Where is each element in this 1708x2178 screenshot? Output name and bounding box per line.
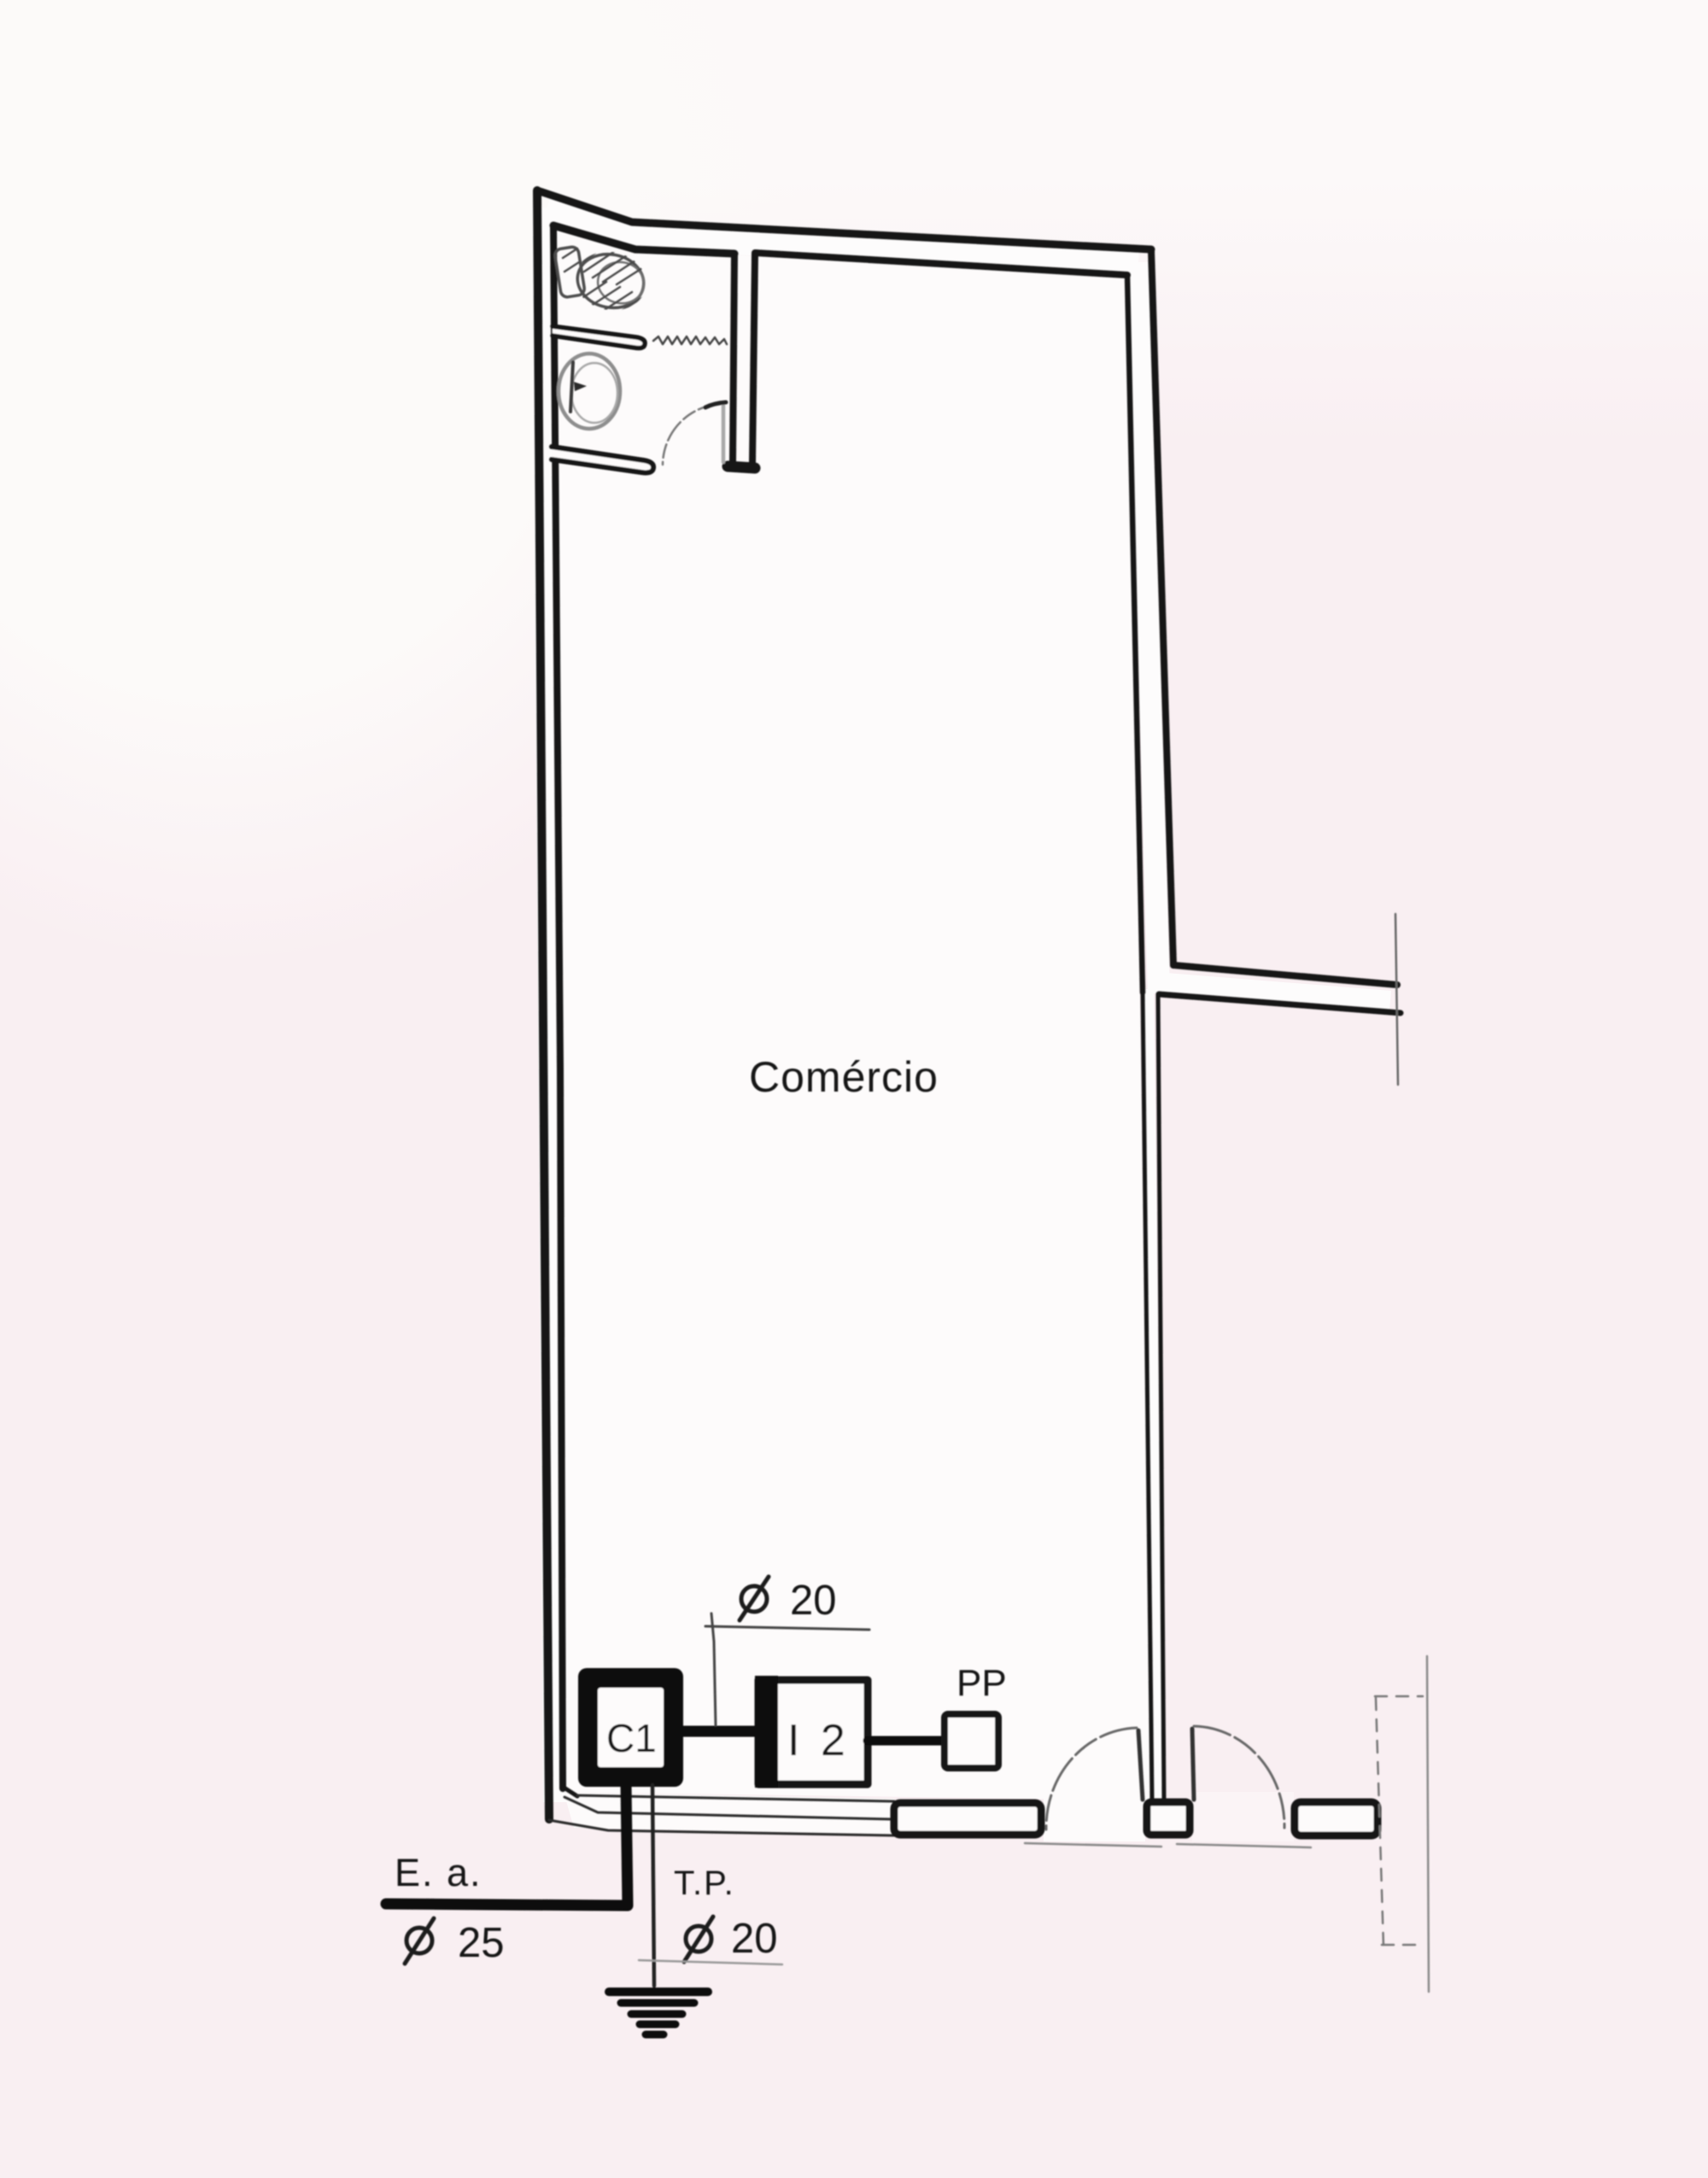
svg-text:C1: C1 bbox=[606, 1716, 657, 1760]
svg-text:T.P.: T.P. bbox=[674, 1865, 735, 1902]
svg-text:E. a.: E. a. bbox=[395, 1851, 483, 1894]
svg-text:Comércio: Comércio bbox=[749, 1053, 939, 1101]
svg-text:PP: PP bbox=[956, 1662, 1007, 1704]
svg-text:25: 25 bbox=[458, 1920, 505, 1966]
svg-text:20: 20 bbox=[790, 1578, 837, 1624]
svg-text:I 2: I 2 bbox=[787, 1716, 850, 1765]
svg-text:20: 20 bbox=[731, 1916, 778, 1962]
